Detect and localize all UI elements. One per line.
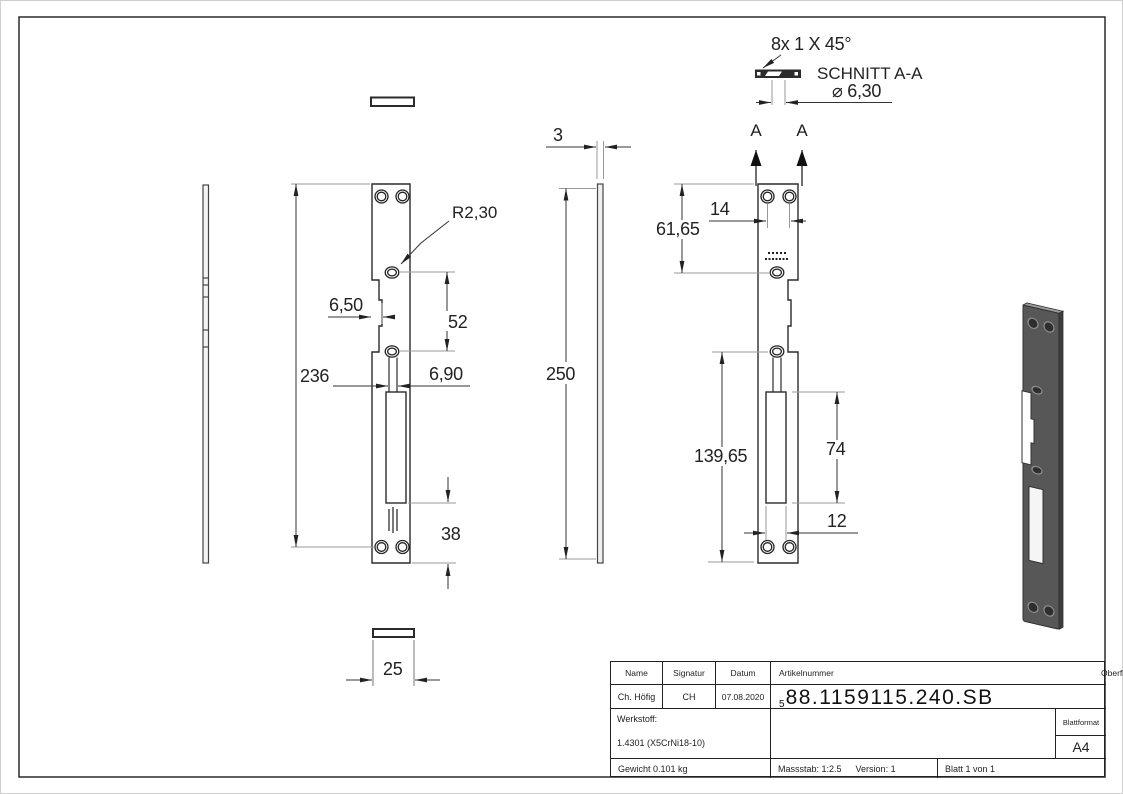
dim-back-slot-height: 74 [826,439,846,459]
section-cut-arrows: A A [750,121,808,186]
side-view-middle: 3 250 [544,125,631,563]
version-value: Version: 1 [856,764,896,774]
dim-front-bottom-offset: 38 [441,524,461,544]
section-marker-left: A [750,121,762,140]
datum-value-cell: 07.08.2020 [716,685,771,709]
part-3d-view [1022,302,1063,630]
werkstoff-label: Werkstoff: [617,714,657,724]
front-latch-slot [386,392,406,503]
side-profile-view-left [203,185,209,563]
blattformat-value-cell: A4 [1056,736,1106,759]
signatur-label: Signatur [673,668,705,678]
chamfer-note: 8x 1 X 45° [771,34,851,54]
back-view-dimensions: 14 61,65 139,65 74 12 [654,184,858,562]
front-view [372,184,410,563]
drawing-sheet: 236 R2,30 6,50 52 6,90 38 25 [0,0,1123,794]
dim-front-channel-width: 6,90 [429,364,463,384]
massstab-value: Massstab: 1:2.5 [778,764,842,774]
back-latch-slot [766,392,786,503]
blattformat-value: A4 [1072,739,1089,755]
signatur-label-cell: Signatur [663,662,716,685]
dim-back-top-to-notch: 61,65 [656,219,700,239]
dim-back-slot-width: 12 [827,511,847,531]
dim-front-notch-depth: 6,50 [329,295,363,315]
werkstoff-cell: Werkstoff: 1.4301 (X5CrNi18-10) [611,709,771,759]
datum-label: Datum [730,668,755,678]
dim-front-notch-height: 52 [448,312,468,332]
datum-label-cell: Datum [716,662,771,685]
artikelnummer-label: Artikelnummer [779,668,834,678]
dim-thickness: 3 [553,125,563,145]
dim-back-hole-spacing: 14 [710,199,730,219]
title-block: Name Signatur Datum Artikelnummer Oberfl… [610,661,1105,777]
dim-plate-width: 25 [383,659,403,679]
name-value: Ch. Höfig [618,692,656,702]
dim-back-notch-to-bottom: 139,65 [694,446,748,466]
signatur-value: CH [683,692,696,702]
signatur-value-cell: CH [663,685,716,709]
oberflaeche-label: Oberfläche: [1101,668,1123,678]
datum-value: 07.08.2020 [722,692,765,702]
name-label: Name [625,668,648,678]
empty-cell [771,709,1056,759]
section-marker-right: A [796,121,808,140]
back-view: A A [750,121,808,563]
artikelnummer-value: 88.1159115.240.SB [786,686,994,709]
dim-hole-diameter: ⌀ 6,30 [832,81,881,101]
werkstoff-value: 1.4301 (X5CrNi18-10) [617,738,705,748]
artikelnummer-header-cell: Artikelnummer Oberfläche: Geschliffen Ko… [771,662,1106,685]
dim-front-radius: R2,30 [452,203,497,222]
gewicht-cell: Gewicht 0.101 kg [611,759,771,778]
section-detail-view: 8x 1 X 45° SCHNITT A-A ⌀ 6,30 [755,34,923,105]
gewicht-value: Gewicht 0.101 kg [618,764,688,774]
dim-side-overall: 250 [546,364,575,384]
bottom-view: 25 [346,629,440,686]
name-label-cell: Name [611,662,663,685]
name-value-cell: Ch. Höfig [611,685,663,709]
massstab-cell: Massstab: 1:2.5 Version: 1 [771,759,938,778]
top-view-upper [371,98,414,107]
dim-front-overall: 236 [300,366,329,386]
artikelnummer-value-cell: 588.1159115.240.SB [771,685,1106,709]
blattformat-label-cell: Blattformat [1056,709,1106,736]
blatt-value: Blatt 1 von 1 [945,764,995,774]
blattformat-label: Blattformat [1063,718,1099,727]
blatt-cell: Blatt 1 von 1 [938,759,1106,778]
